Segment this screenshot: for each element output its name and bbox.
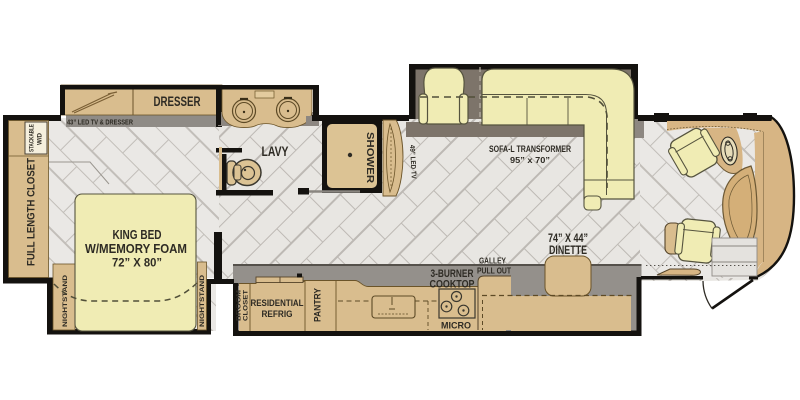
svg-text:COOKTOP: COOKTOP xyxy=(430,279,475,291)
svg-text:SHOWER: SHOWER xyxy=(364,132,376,183)
svg-text:GALLEY: GALLEY xyxy=(479,256,506,266)
svg-text:DRESSER: DRESSER xyxy=(154,94,201,109)
svg-text:REFRIG: REFRIG xyxy=(262,309,293,320)
svg-text:FULL LENGTH CLOSET: FULL LENGTH CLOSET xyxy=(26,158,38,266)
svg-text:43” LED TV & DRESSER: 43” LED TV & DRESSER xyxy=(67,120,133,127)
svg-text:BROOM: BROOM xyxy=(236,290,243,321)
svg-text:NIGHTSTAND: NIGHTSTAND xyxy=(63,274,69,327)
svg-text:LAVY: LAVY xyxy=(262,144,289,159)
svg-text:KING BED: KING BED xyxy=(113,228,162,242)
svg-text:MICRO: MICRO xyxy=(441,321,471,332)
svg-text:NIGHTSTAND: NIGHTSTAND xyxy=(200,274,206,327)
svg-text:74” X 44”: 74” X 44” xyxy=(548,233,588,245)
svg-text:STACKABLE: STACKABLE xyxy=(29,124,36,152)
svg-text:W/MEMORY FOAM: W/MEMORY FOAM xyxy=(85,242,187,256)
svg-text:SOFA-L TRANSFORMER: SOFA-L TRANSFORMER xyxy=(489,144,571,155)
svg-text:DINETTE: DINETTE xyxy=(549,245,587,257)
svg-text:95” x 70”: 95” x 70” xyxy=(510,155,550,165)
svg-text:PANTRY: PANTRY xyxy=(313,287,324,322)
svg-text:CLOSET: CLOSET xyxy=(243,290,250,321)
svg-text:W/D: W/D xyxy=(37,132,44,145)
svg-text:PULL OUT: PULL OUT xyxy=(477,266,512,276)
svg-text:72” X 80”: 72” X 80” xyxy=(112,256,162,270)
svg-text:RESIDENTIAL: RESIDENTIAL xyxy=(251,298,304,309)
